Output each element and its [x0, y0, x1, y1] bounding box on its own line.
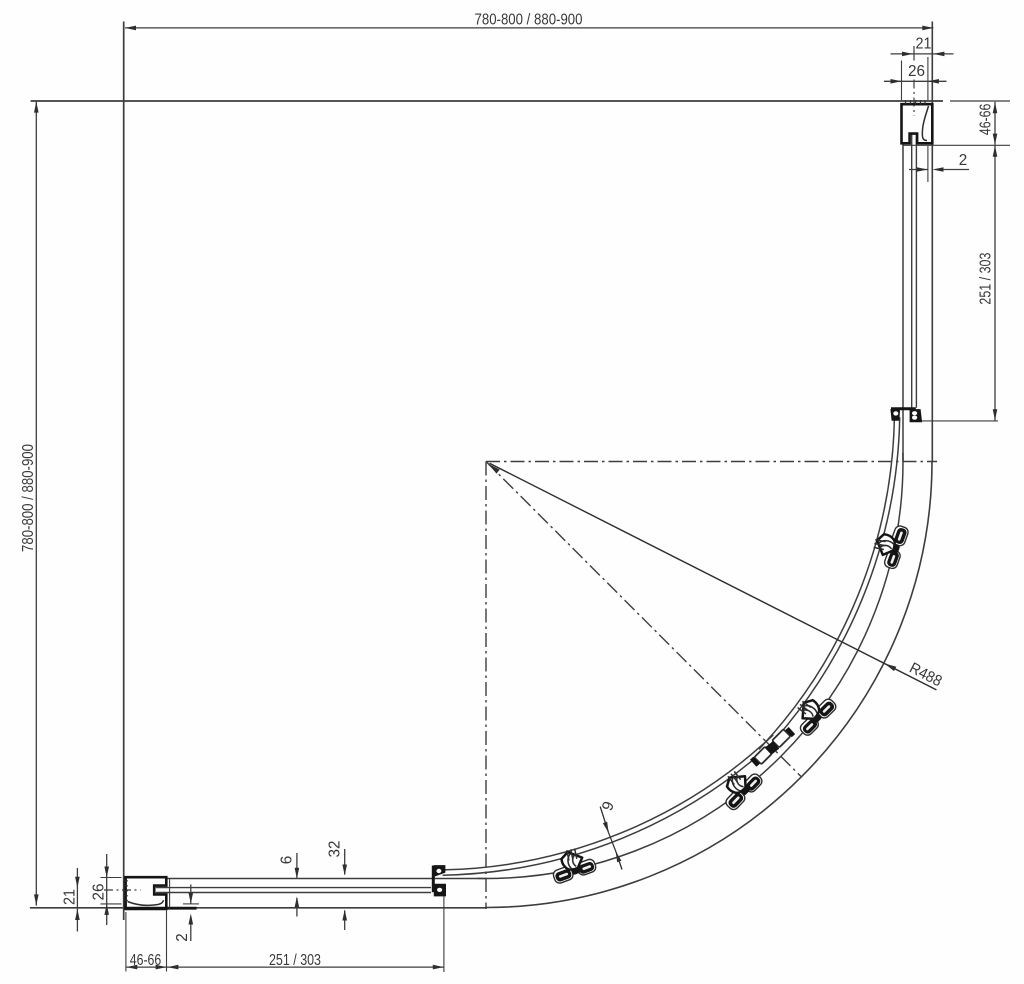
svg-text:2: 2 — [959, 152, 968, 169]
svg-text:2: 2 — [174, 933, 191, 942]
svg-text:6: 6 — [279, 856, 296, 865]
svg-text:21: 21 — [62, 889, 79, 905]
svg-text:26: 26 — [908, 63, 925, 80]
svg-text:32: 32 — [326, 841, 343, 858]
svg-text:251 / 303: 251 / 303 — [269, 952, 321, 969]
svg-text:46-66: 46-66 — [977, 104, 994, 135]
svg-text:780-800 / 880-900: 780-800 / 880-900 — [475, 11, 583, 28]
svg-text:780-800 / 880-900: 780-800 / 880-900 — [20, 444, 37, 552]
svg-text:251 / 303: 251 / 303 — [977, 253, 994, 305]
svg-text:21: 21 — [916, 36, 932, 53]
svg-text:26: 26 — [91, 884, 108, 901]
svg-text:46-66: 46-66 — [130, 952, 162, 969]
